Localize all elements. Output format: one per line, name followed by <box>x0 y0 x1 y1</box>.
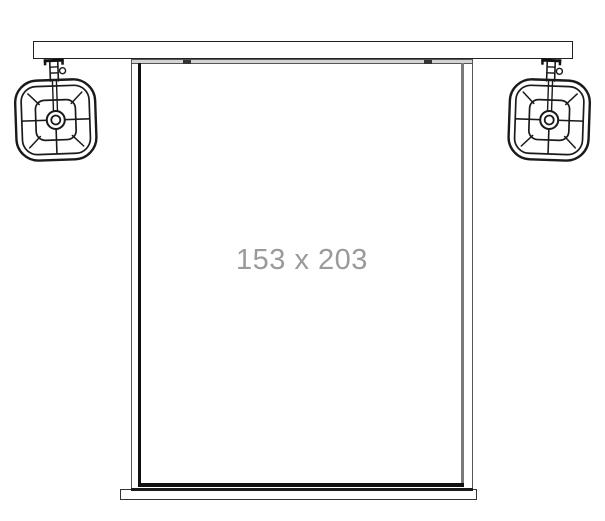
screen-outer-frame <box>131 59 473 497</box>
screen-edge-bottom <box>138 483 464 487</box>
speaker-body-icon <box>508 79 591 162</box>
screen-size-label: 153 x 203 <box>131 244 473 277</box>
speaker-icon <box>504 56 596 167</box>
clamp-icon <box>44 59 66 82</box>
mount-bar <box>33 41 573 59</box>
speaker-body-icon <box>14 79 97 162</box>
speaker-icon <box>10 56 102 167</box>
speaker-right <box>504 56 596 167</box>
clamp-icon <box>541 59 563 82</box>
speaker-left <box>10 56 102 167</box>
technical-drawing-canvas: 153 x 203 <box>0 0 605 521</box>
screen-bottom-bar-band <box>131 488 473 491</box>
